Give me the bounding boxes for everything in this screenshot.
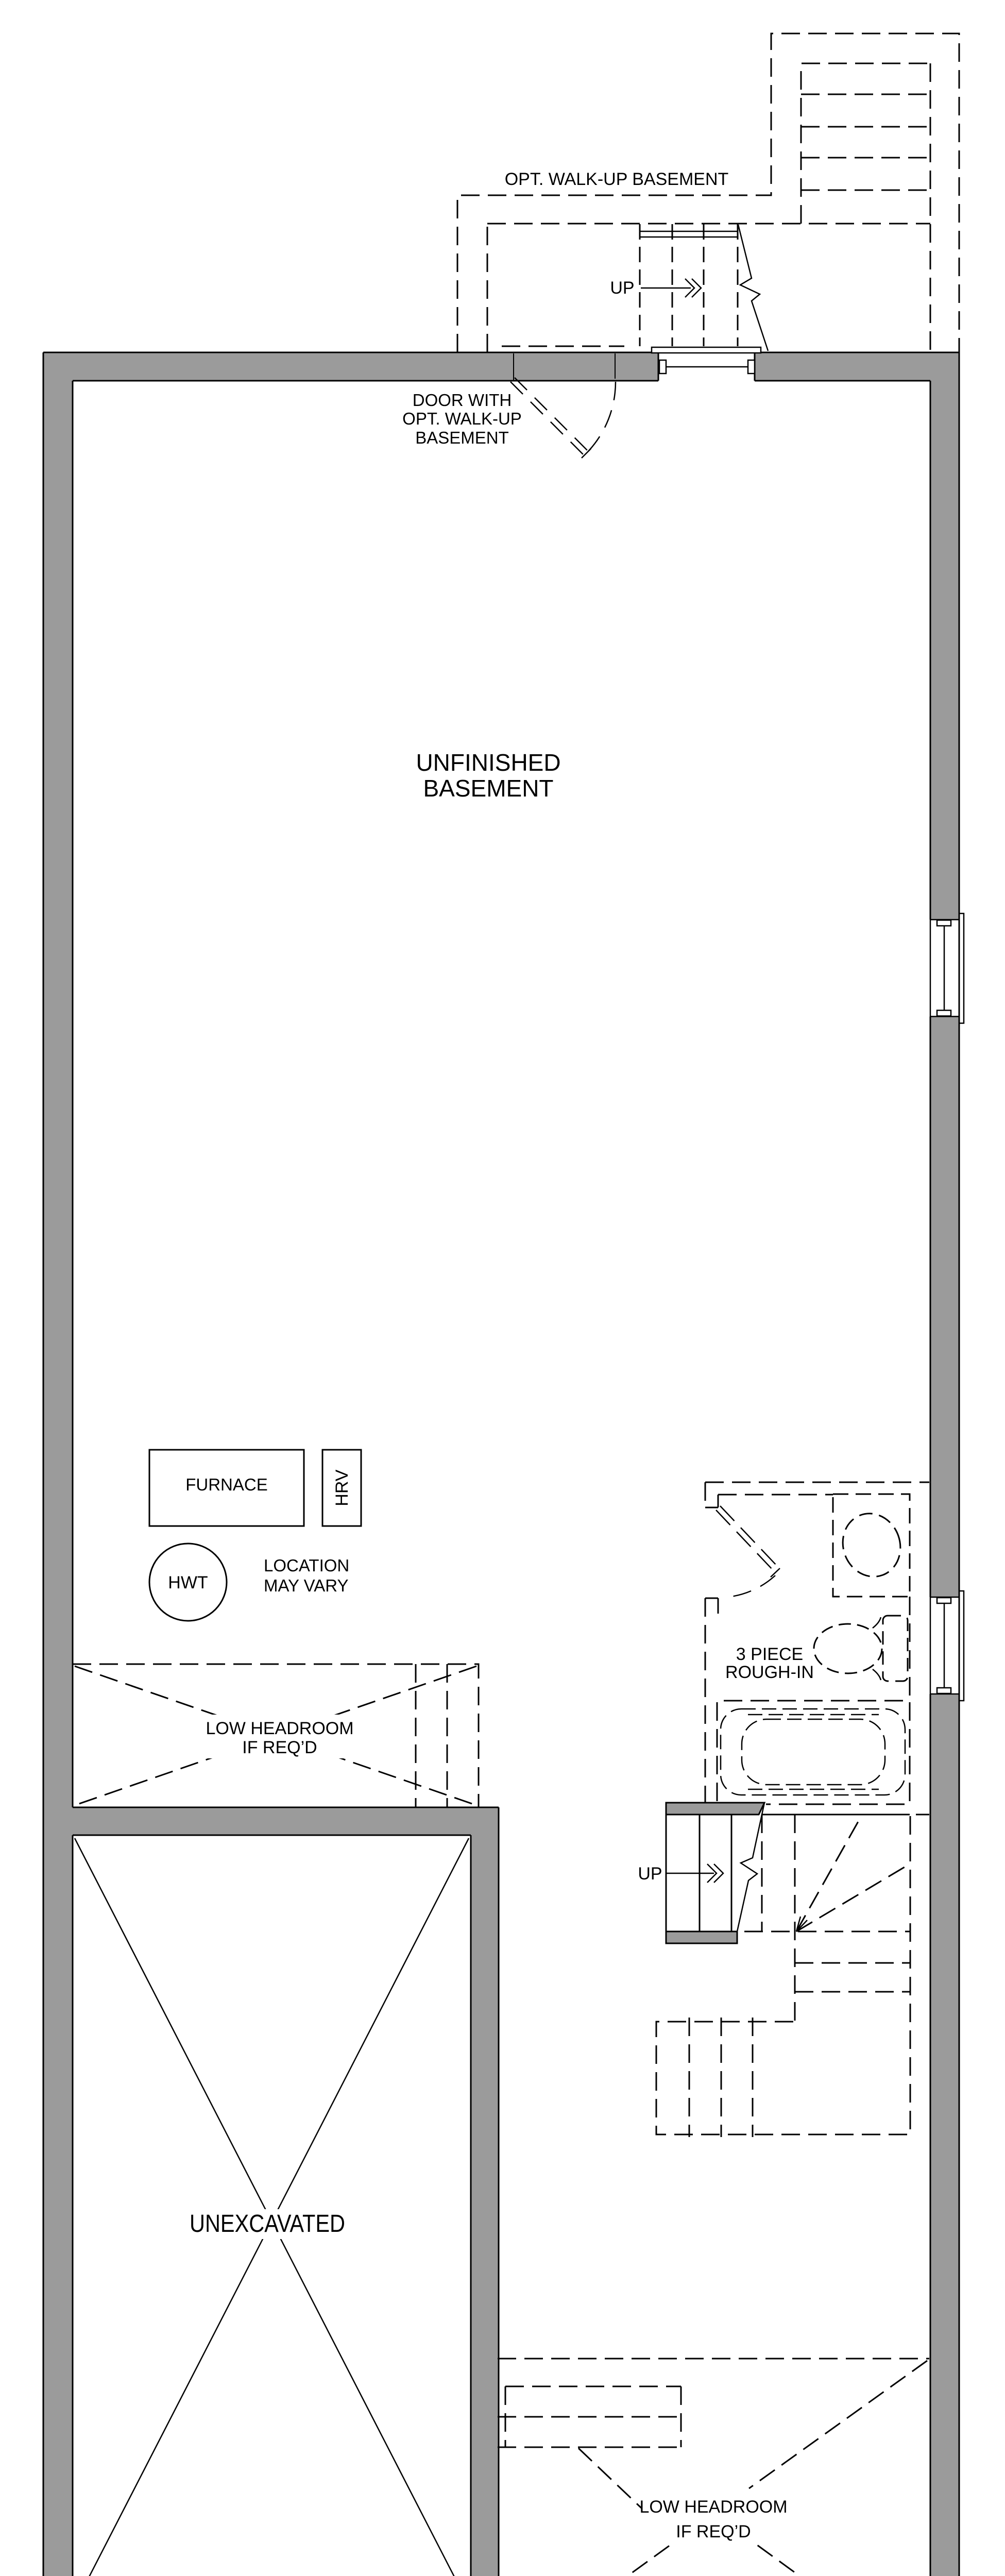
svg-text:IF REQ’D: IF REQ’D [242,1738,317,1757]
svg-text:LOCATION: LOCATION [264,1556,349,1575]
svg-text:MAY VARY: MAY VARY [264,1576,348,1595]
svg-text:UNFINISHED: UNFINISHED [416,749,560,776]
svg-text:3 PIECE: 3 PIECE [736,1645,803,1664]
svg-text:OPT. WALK-UP BASEMENT: OPT. WALK-UP BASEMENT [505,170,729,189]
svg-text:UNEXCAVATED: UNEXCAVATED [190,2210,345,2238]
svg-text:IF REQ’D: IF REQ’D [676,2522,751,2541]
svg-text:DOOR WITH: DOOR WITH [413,391,512,410]
svg-text:HRV: HRV [332,1469,352,1506]
svg-text:HWT: HWT [168,1573,208,1592]
svg-text:BASEMENT: BASEMENT [423,775,553,802]
svg-text:FURNACE: FURNACE [185,1475,268,1494]
svg-text:LOW HEADROOM: LOW HEADROOM [639,2497,787,2517]
svg-text:UP: UP [610,278,634,298]
svg-text:UP: UP [638,1864,662,1884]
svg-text:BASEMENT: BASEMENT [415,428,509,447]
svg-text:OPT. WALK-UP: OPT. WALK-UP [402,409,522,428]
svg-text:ROUGH-IN: ROUGH-IN [725,1663,814,1682]
svg-text:LOW HEADROOM: LOW HEADROOM [206,1719,353,1738]
